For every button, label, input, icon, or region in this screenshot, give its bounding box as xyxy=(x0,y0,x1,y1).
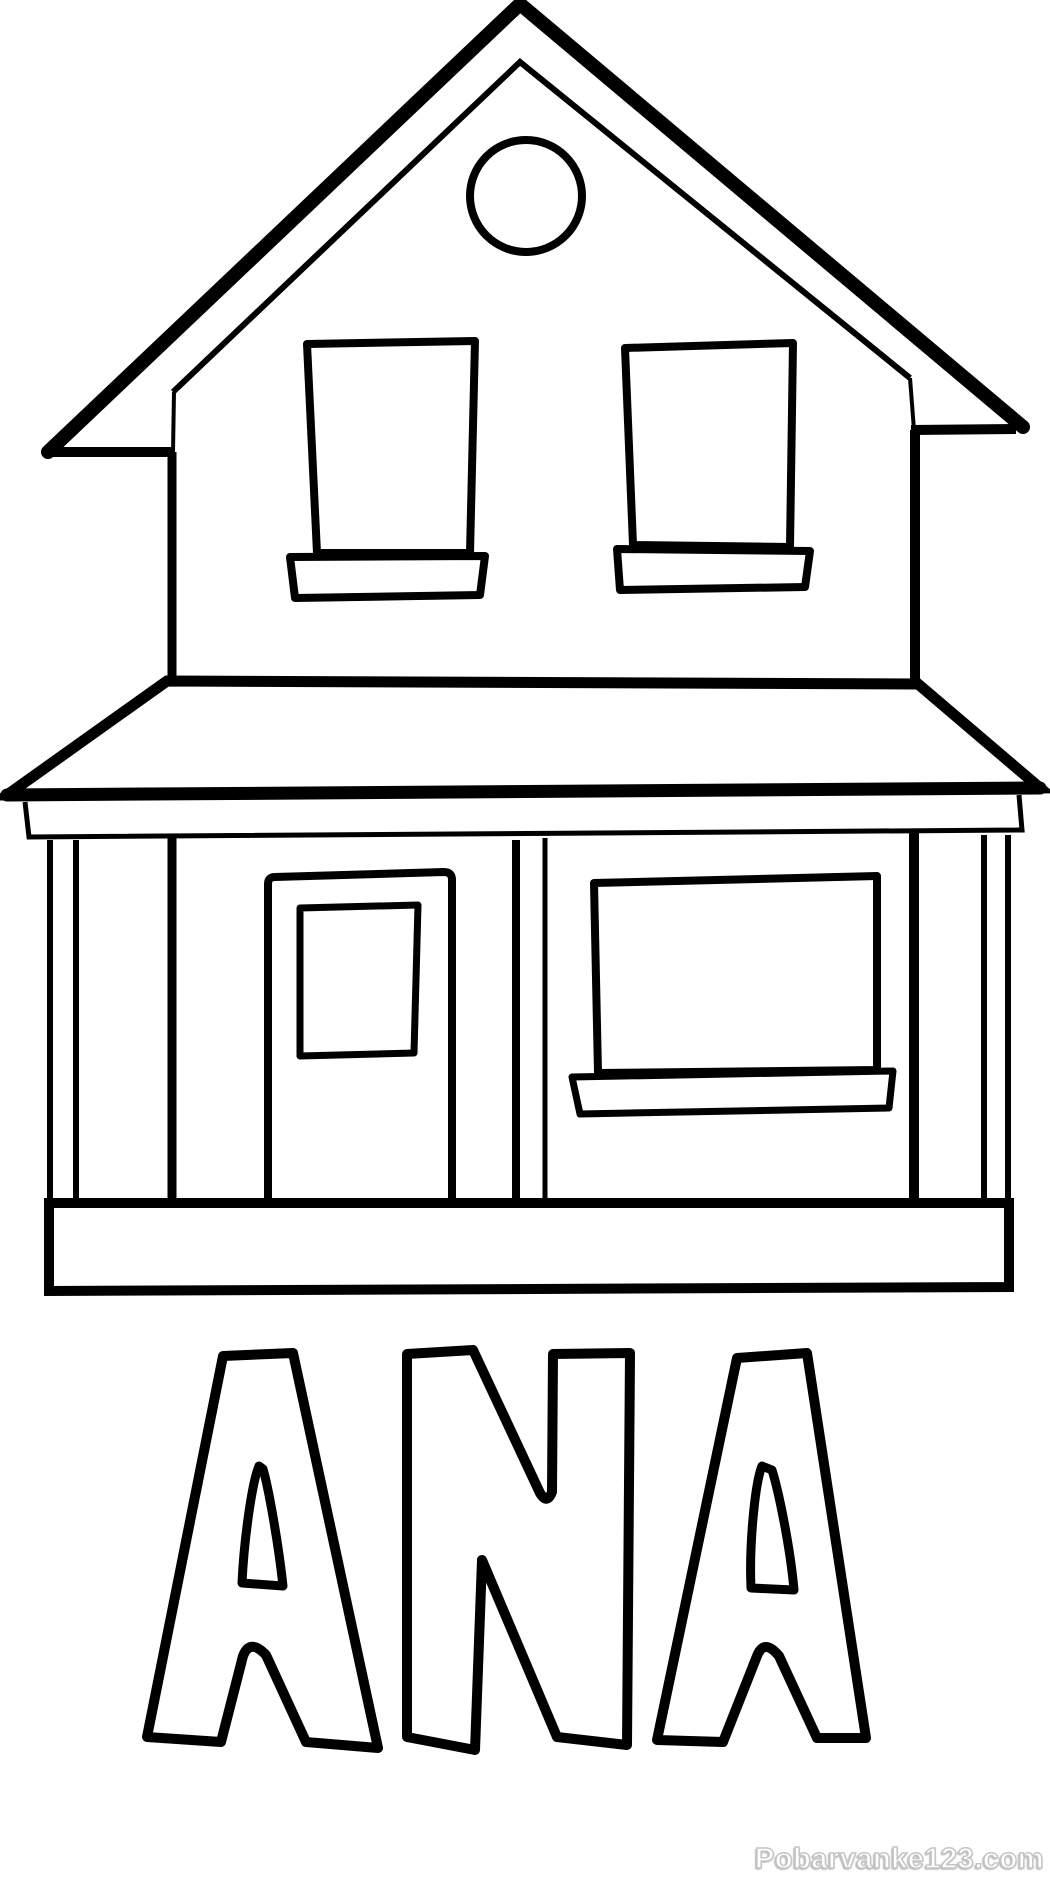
upper-right-window-frame xyxy=(625,343,793,547)
awning xyxy=(7,681,1040,837)
foundation-base xyxy=(49,1203,1009,1291)
watermark: Pobarvanke123.com xyxy=(755,1843,1044,1876)
house-illustration xyxy=(0,0,1050,1881)
lower-window-sill xyxy=(572,1071,893,1114)
awning-front-edge xyxy=(7,788,1040,795)
upper-left-window-frame xyxy=(307,341,475,553)
roof-right-eave xyxy=(911,429,1016,430)
lower-window-frame xyxy=(594,876,877,1073)
awning-fascia xyxy=(25,795,1022,837)
upper-left-window xyxy=(290,341,485,598)
door xyxy=(268,872,452,1203)
name-letters xyxy=(147,1350,866,1750)
roof-inner-left-joint xyxy=(173,392,174,452)
awning-roof xyxy=(7,681,1040,795)
roof-inner-right-joint xyxy=(910,378,914,430)
lower-window xyxy=(572,876,893,1114)
upper-left-window-sill xyxy=(290,556,485,598)
door-window xyxy=(300,905,418,1056)
roof xyxy=(44,4,1023,452)
coloring-page: ANA Pobarvanke123.com xyxy=(0,0,1050,1881)
gable-round-window xyxy=(470,140,582,252)
upper-right-window-sill xyxy=(617,549,810,590)
upper-right-window xyxy=(617,343,810,590)
letter-n-outline xyxy=(407,1350,630,1750)
